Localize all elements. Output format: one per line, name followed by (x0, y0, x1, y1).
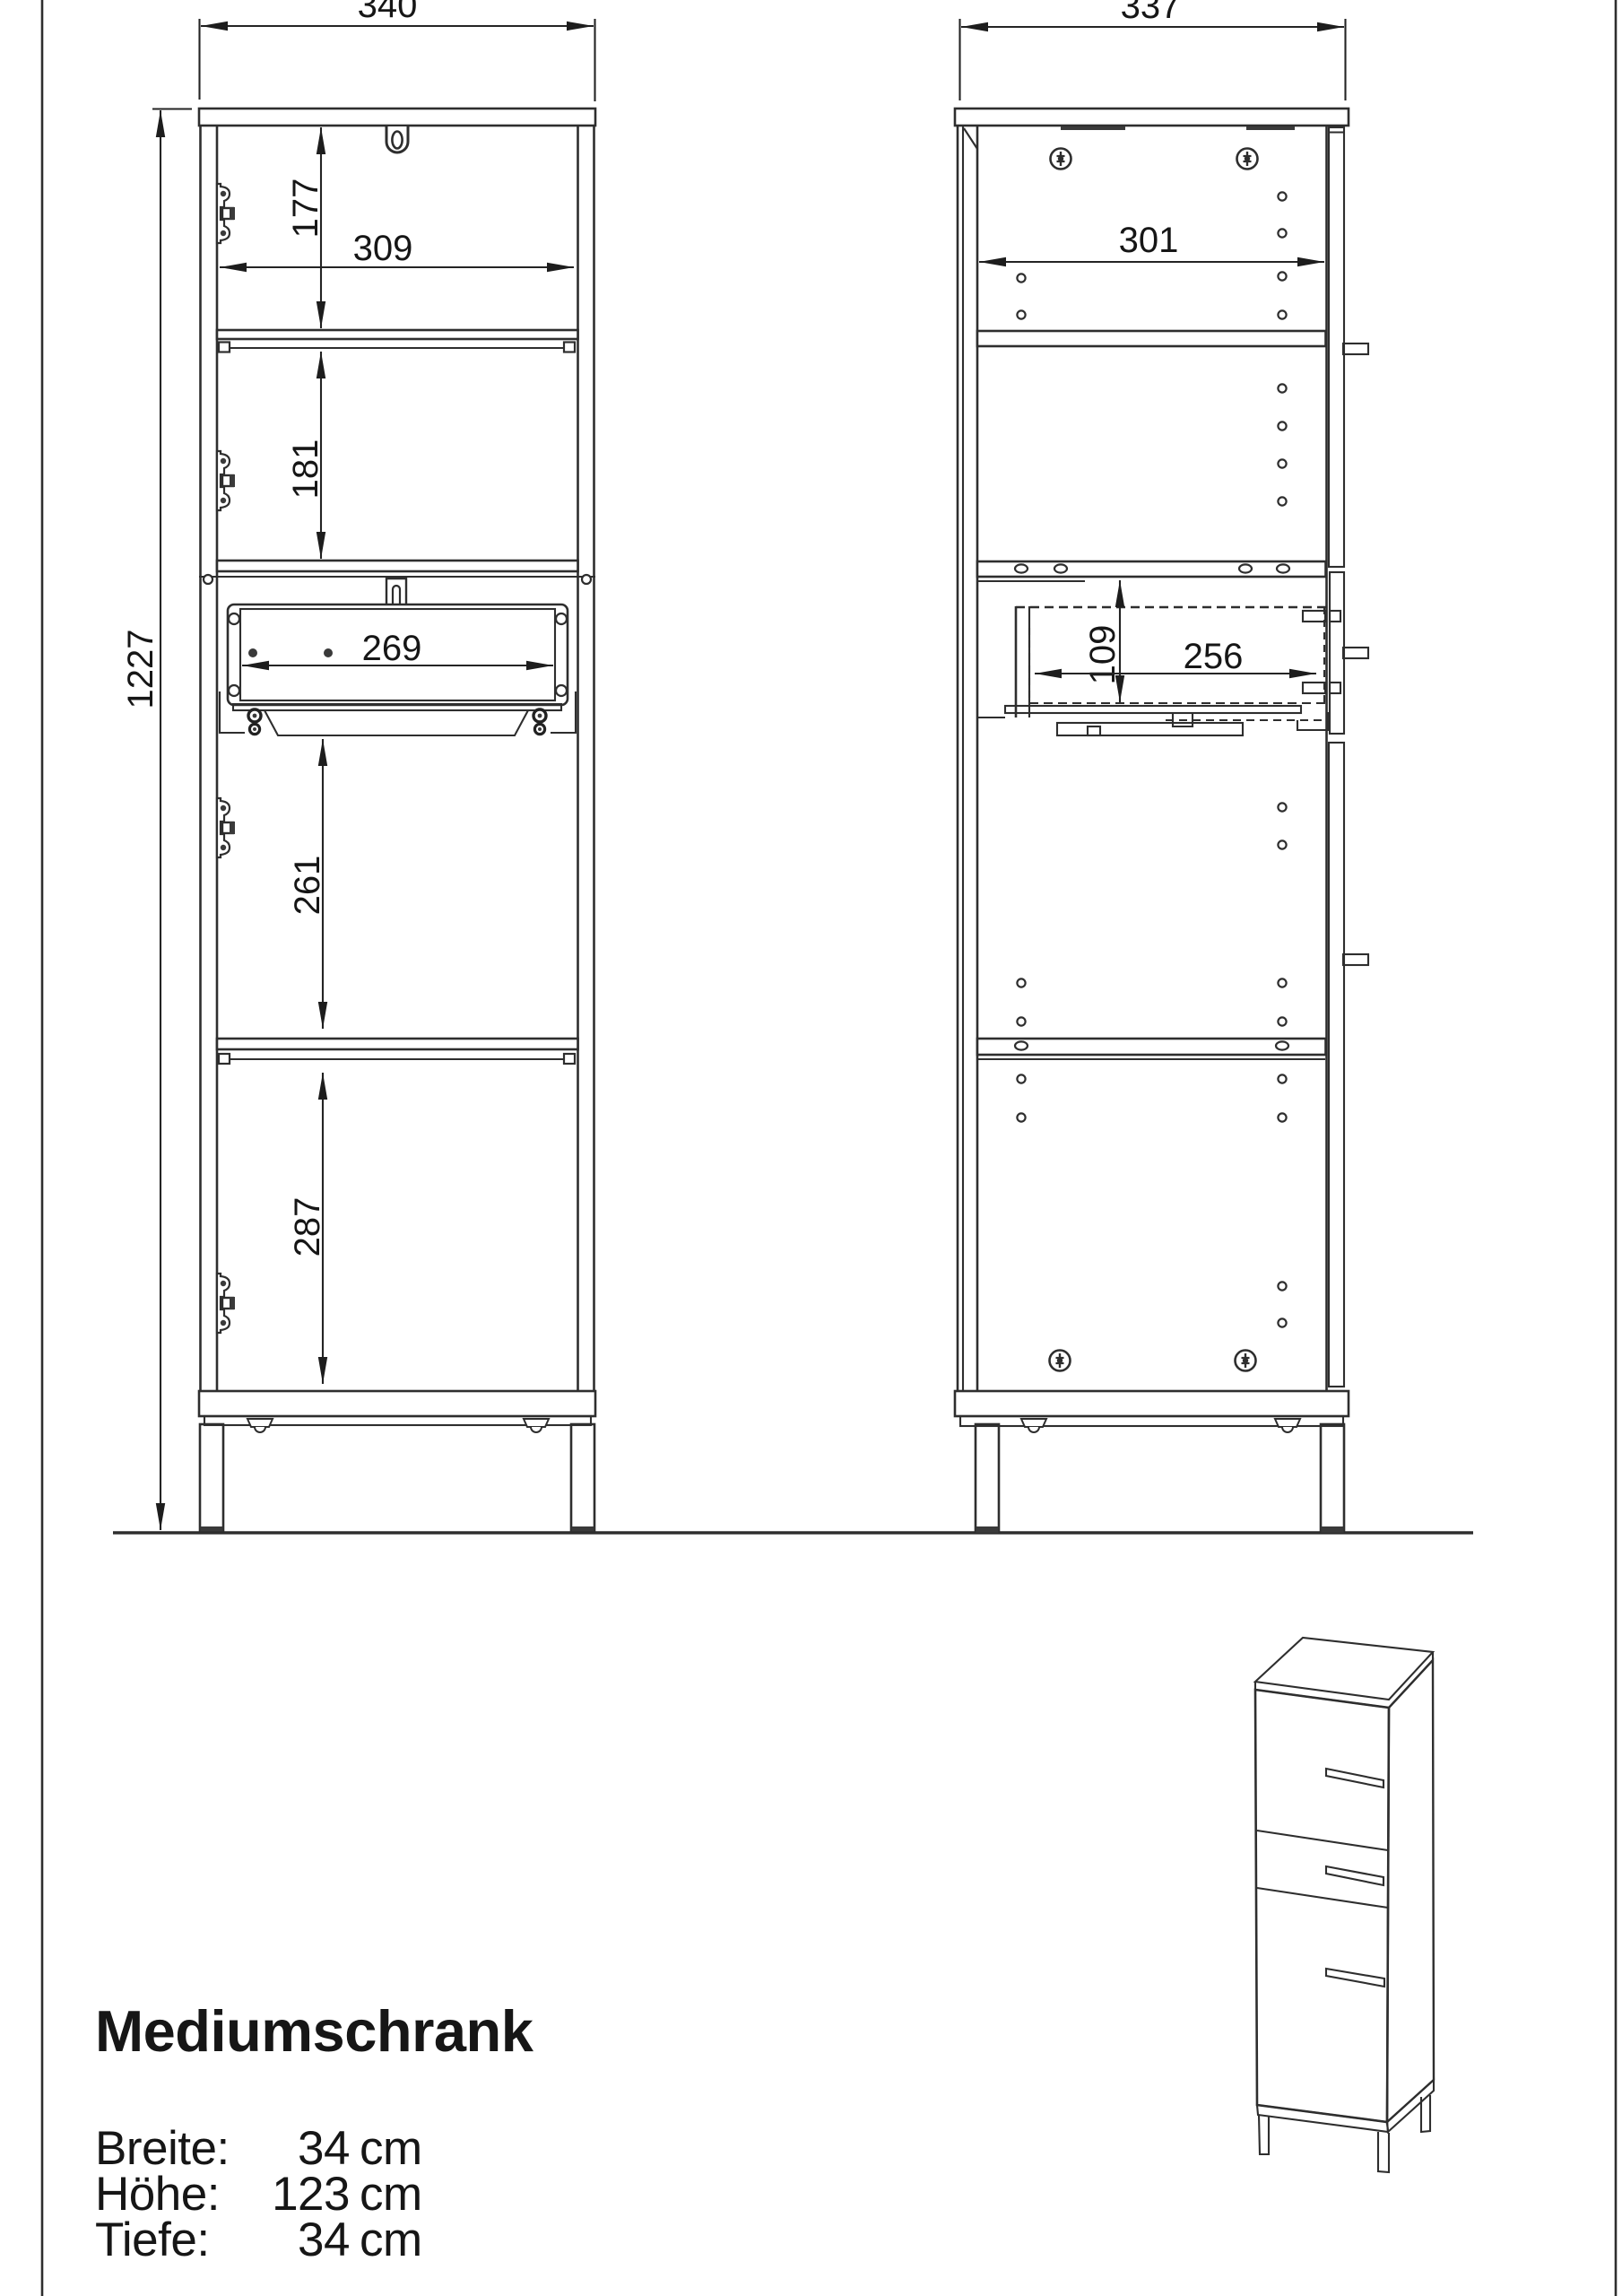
svg-text:261: 261 (288, 856, 327, 916)
svg-text:287: 287 (288, 1197, 327, 1257)
svg-text:337: 337 (1121, 0, 1181, 26)
svg-text:340: 340 (358, 0, 418, 25)
svg-text:34: 34 (298, 2213, 350, 2266)
svg-text:Tiefe:: Tiefe: (95, 2213, 210, 2266)
svg-text:1227: 1227 (121, 630, 160, 709)
svg-text:301: 301 (1119, 221, 1179, 260)
svg-text:181: 181 (286, 439, 325, 500)
svg-text:109: 109 (1083, 625, 1123, 685)
svg-text:cm: cm (360, 2213, 422, 2266)
svg-text:Mediumschrank: Mediumschrank (95, 1998, 534, 2064)
svg-text:269: 269 (362, 629, 422, 668)
svg-text:177: 177 (286, 178, 325, 239)
svg-text:256: 256 (1184, 637, 1244, 676)
svg-text:309: 309 (353, 229, 413, 268)
